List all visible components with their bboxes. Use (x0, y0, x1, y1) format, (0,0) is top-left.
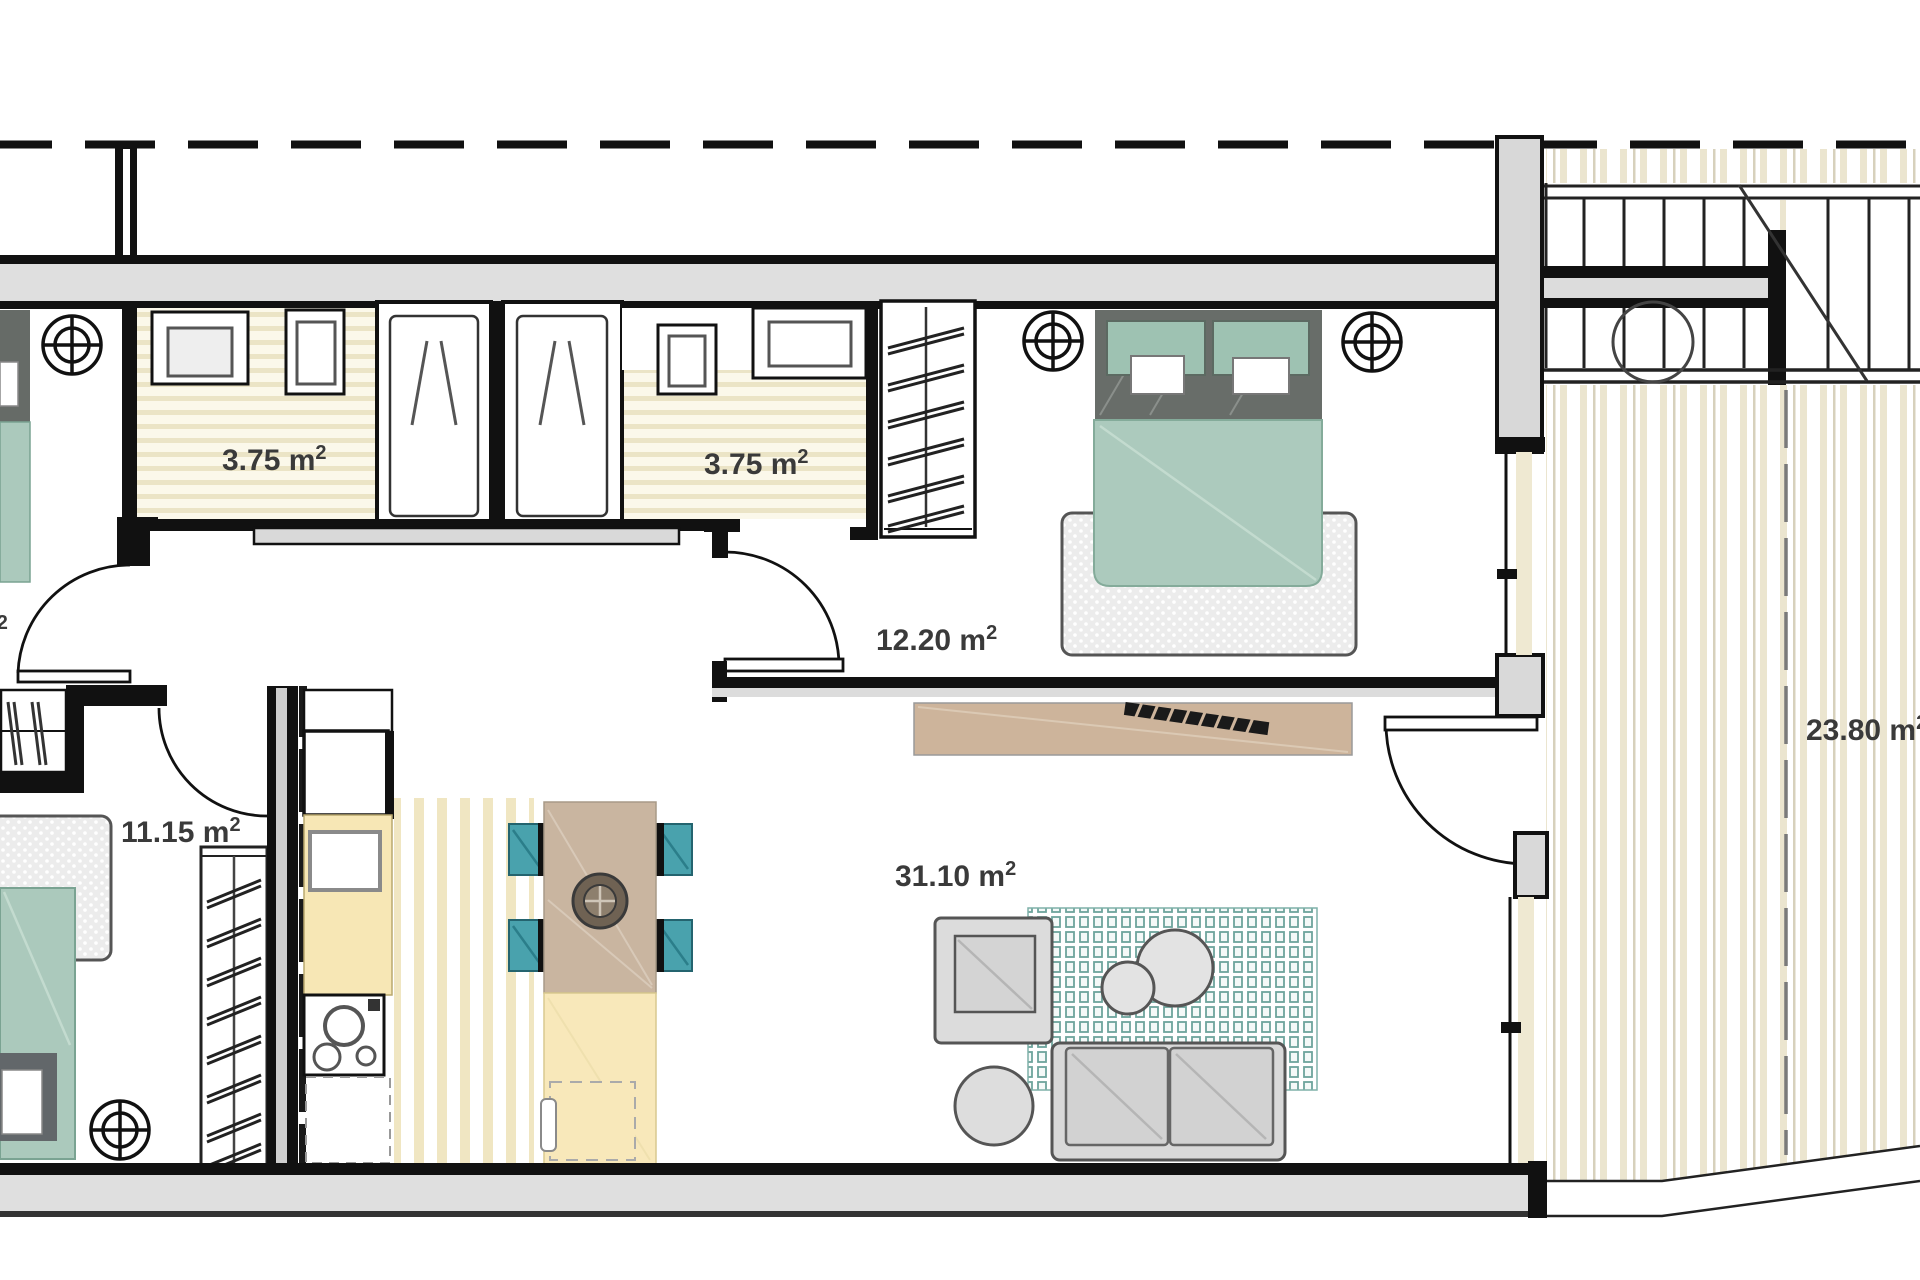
svg-text:31.10 m2: 31.10 m2 (895, 858, 1016, 893)
svg-text:3.75 m2: 3.75 m2 (704, 446, 809, 481)
svg-text:12.20 m2: 12.20 m2 (876, 622, 997, 657)
svg-text:23.80 m2: 23.80 m2 (1806, 712, 1920, 747)
svg-text:3.75 m2: 3.75 m2 (222, 442, 327, 477)
svg-text:11.15 m2: 11.15 m2 (121, 814, 241, 849)
